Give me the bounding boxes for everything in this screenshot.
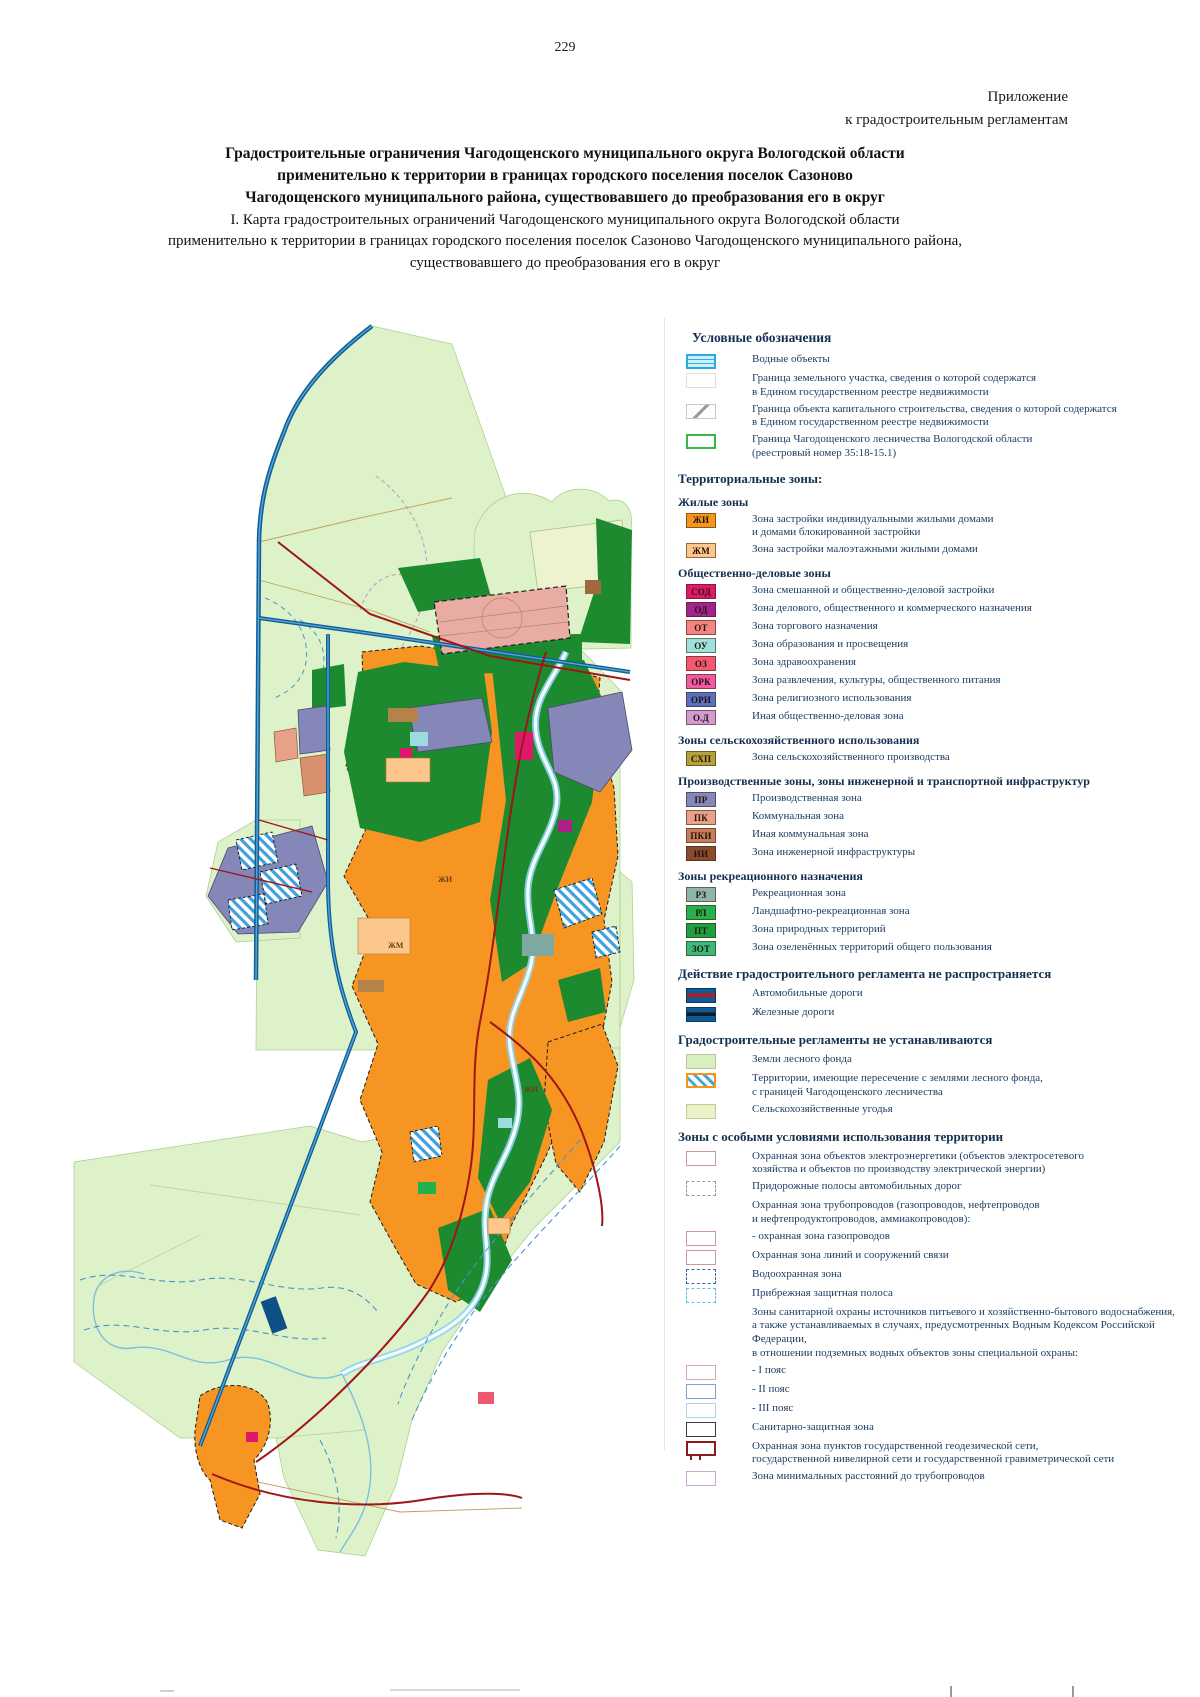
zone-badge: ЗОТ xyxy=(686,941,716,956)
zone-badge: О.Д xyxy=(686,710,716,725)
zone-badge: ОД xyxy=(686,602,716,617)
legend-item-sanitary-sources-title: Зоны санитарной охраны источников питьев… xyxy=(678,1306,1184,1361)
zone-badge: ОРИ xyxy=(686,692,716,707)
legend-item-railroads: Железные дороги xyxy=(678,1006,1184,1022)
legend-item-label: Зона религиозного использования xyxy=(752,692,911,706)
legend-item-label: Водные объекты xyxy=(752,353,830,367)
legend-item-label: Земли лесного фонда xyxy=(752,1053,852,1067)
legend-item-forestry-border: Граница Чагодощенского лесничества Волог… xyxy=(678,433,1184,461)
legend-zone-pk: ПК Коммунальная зона xyxy=(678,810,1184,825)
legend-item-label: Граница земельного участка, сведения о к… xyxy=(752,372,1036,400)
legend-item-belt-3: - III пояс xyxy=(678,1402,1184,1418)
railroad-swatch xyxy=(686,1007,716,1022)
zone-badge: ПКИ xyxy=(686,828,716,843)
section-header-no-regulation: Действие градостроительного регламента н… xyxy=(678,966,1184,982)
legend-item-gas-pipeline-zone: - охранная зона газопроводов xyxy=(678,1230,1184,1246)
legend-item-sanitary-protection: Санитарно-защитная зона xyxy=(678,1421,1184,1437)
zone-badge: ЖИ xyxy=(686,513,716,528)
agri-lands-swatch xyxy=(686,1104,716,1119)
legend-zone-rz: РЗ Рекреационная зона xyxy=(678,887,1184,902)
legend-item-label: - охранная зона газопроводов xyxy=(752,1230,890,1244)
legend-item-label: Автомобильные дороги xyxy=(752,987,863,1001)
zone-badge: ОТ xyxy=(686,620,716,635)
legend-item-forest-lands: Земли лесного фонда xyxy=(678,1053,1184,1069)
legend-zone-pt: ПТ Зона природных территорий xyxy=(678,923,1184,938)
legend-item-label: Коммунальная зона xyxy=(752,810,844,824)
legend-item-label: Зона делового, общественного и коммерчес… xyxy=(752,602,1032,616)
legend-item-label: Охранная зона трубопроводов (газопроводо… xyxy=(752,1199,1040,1227)
zone-badge: РЛ xyxy=(686,905,716,920)
annex-note: Приложение к градостроительным регламент… xyxy=(845,86,1068,133)
legend-item-label: Зона образования и просвещения xyxy=(752,638,908,652)
document-title: Градостроительные ограничения Чагодощенс… xyxy=(40,143,1090,209)
legend-item-label: Зона сельскохозяйственного производства xyxy=(752,751,950,765)
auto-road-swatch xyxy=(686,988,716,1003)
legend-item-label: Иная общественно-деловая зона xyxy=(752,710,904,724)
zoning-map: ЖИ ЖИ ЖМ xyxy=(60,280,635,1560)
page-edge-artifact xyxy=(1072,1686,1074,1697)
legend-item-label: Зона озеленённых территорий общего польз… xyxy=(752,941,992,955)
legend-item-label: Территории, имеющие пересечение с землям… xyxy=(752,1072,1043,1100)
page-edge-artifact xyxy=(160,1690,174,1692)
pipeline-min-distance-swatch xyxy=(686,1471,716,1486)
legend-zone-ii: ИИ Зона инженерной инфраструктуры xyxy=(678,846,1184,861)
zoning-map-svg: ЖИ ЖИ ЖМ xyxy=(60,280,635,1560)
water-protection-swatch xyxy=(686,1269,716,1284)
zone-badge: ОУ xyxy=(686,638,716,653)
legend-item-egrn-parcel: Граница земельного участка, сведения о к… xyxy=(678,372,1184,400)
page-edge-artifact xyxy=(390,1689,520,1691)
legend-item-pipeline-zone-title: Охранная зона трубопроводов (газопроводо… xyxy=(678,1199,1184,1227)
egrn-parcel-swatch xyxy=(686,373,716,388)
group-header-residential: Жилые зоны xyxy=(678,495,1184,510)
roadside-strip-swatch xyxy=(686,1181,716,1196)
legend-item-label: Зона минимальных расстояний до трубопров… xyxy=(752,1470,985,1484)
legend-item-label: - I пояс xyxy=(752,1364,786,1378)
legend-zone-ori: ОРИ Зона религиозного использования xyxy=(678,692,1184,707)
zone-badge: ПК xyxy=(686,810,716,825)
group-header-business: Общественно-деловые зоны xyxy=(678,566,1184,581)
legend-item-label: - II пояс xyxy=(752,1383,790,1397)
legend-item-label: Производственная зона xyxy=(752,792,862,806)
legend-item-label: Санитарно-защитная зона xyxy=(752,1421,874,1435)
legend-item-label: Граница Чагодощенского лесничества Волог… xyxy=(752,433,1032,461)
legend-zone-zhm: ЖМ Зона застройки малоэтажными жилыми до… xyxy=(678,543,1184,558)
legend-item-egrn-capital: Граница объекта капитального строительст… xyxy=(678,403,1184,431)
legend-item-label: Иная коммунальная зона xyxy=(752,828,869,842)
capital-object-swatch xyxy=(686,404,716,419)
comm-lines-swatch xyxy=(686,1250,716,1265)
legend-item-forest-intersection: Территории, имеющие пересечение с землям… xyxy=(678,1072,1184,1100)
legend-item-comm-lines-zone: Охранная зона линий и сооружений связи xyxy=(678,1249,1184,1265)
group-header-agricultural: Зоны сельскохозяйственного использования xyxy=(678,733,1184,748)
legend-item-label: Охранная зона объектов электроэнергетики… xyxy=(752,1150,1084,1178)
gas-pipeline-swatch xyxy=(686,1231,716,1246)
forest-intersection-swatch xyxy=(686,1073,716,1088)
legend-item-label: Охранная зона линий и сооружений связи xyxy=(752,1249,949,1263)
legend-zone-pr: ПР Производственная зона xyxy=(678,792,1184,807)
legend-item-water: Водные объекты xyxy=(678,353,1184,369)
legend-item-label: Придорожные полосы автомобильных дорог xyxy=(752,1180,962,1194)
legend-item-shore-strip: Прибрежная защитная полоса xyxy=(678,1287,1184,1303)
legend-item-label: Сельскохозяйственные угодья xyxy=(752,1103,893,1117)
group-header-recreation: Зоны рекреационного назначения xyxy=(678,869,1184,884)
power-zone-swatch xyxy=(686,1151,716,1166)
legend-zone-ot: ОТ Зона торгового назначения xyxy=(678,620,1184,635)
legend-item-agri-lands: Сельскохозяйственные угодья xyxy=(678,1103,1184,1119)
sanitary-protection-swatch xyxy=(686,1422,716,1437)
legend-item-label: Зона инженерной инфраструктуры xyxy=(752,846,915,860)
legend-item-label: Зоны санитарной охраны источников питьев… xyxy=(752,1306,1184,1361)
page-number: 229 xyxy=(40,40,1090,56)
section-header-not-established: Градостроительные регламенты не устанавл… xyxy=(678,1032,1184,1048)
legend-zone-rl: РЛ Ландшафтно-рекреационная зона xyxy=(678,905,1184,920)
legend-zone-sod: СОД Зона смешанной и общественно-деловой… xyxy=(678,584,1184,599)
zone-badge: ЖМ xyxy=(686,543,716,558)
legend-item-label: Зона смешанной и общественно-деловой зас… xyxy=(752,584,994,598)
zone-badge: ИИ xyxy=(686,846,716,861)
map-legend: Условные обозначения Водные объекты Гран… xyxy=(664,330,1184,1489)
section-header-special-zones: Зоны с особыми условиями использования т… xyxy=(678,1129,1184,1145)
legend-item-belt-2: - II пояс xyxy=(678,1383,1184,1399)
legend-item-auto-roads: Автомобильные дороги xyxy=(678,987,1184,1003)
geodetic-zone-swatch xyxy=(686,1441,716,1456)
map-caption: I. Карта градостроительных ограничений Ч… xyxy=(20,210,1110,274)
legend-zone-zhi: ЖИ Зона застройки индивидуальными жилыми… xyxy=(678,513,1184,541)
legend-item-label: Зона развлечения, культуры, общественног… xyxy=(752,674,1001,688)
legend-item-label: Зона застройки индивидуальными жилыми до… xyxy=(752,513,994,541)
legend-item-label: Прибрежная защитная полоса xyxy=(752,1287,893,1301)
forestry-border-swatch xyxy=(686,434,716,449)
zone-badge: ПР xyxy=(686,792,716,807)
legend-zone-skhp: СХП Зона сельскохозяйственного производс… xyxy=(678,751,1184,766)
legend-item-label: Охранная зона пунктов государственной ге… xyxy=(752,1440,1114,1468)
legend-item-label: Рекреационная зона xyxy=(752,887,846,901)
legend-item-label: Зона здравоохранения xyxy=(752,656,856,670)
belt-3-swatch xyxy=(686,1403,716,1418)
legend-zone-od-other: О.Д Иная общественно-деловая зона xyxy=(678,710,1184,725)
zone-badge: ОРК xyxy=(686,674,716,689)
legend-item-label: Водоохранная зона xyxy=(752,1268,842,1282)
legend-item-label: Зона застройки малоэтажными жилыми домам… xyxy=(752,543,978,557)
belt-2-swatch xyxy=(686,1384,716,1399)
page-edge-artifact xyxy=(950,1686,952,1697)
zone-badge: СХП xyxy=(686,751,716,766)
zone-badge: ОЗ xyxy=(686,656,716,671)
legend-zone-pki: ПКИ Иная коммунальная зона xyxy=(678,828,1184,843)
legend-zone-zot: ЗОТ Зона озеленённых территорий общего п… xyxy=(678,941,1184,956)
document-page: 229 Приложение к градостроительным регла… xyxy=(0,0,1200,1697)
map-label-zhi-2: ЖИ xyxy=(524,1085,539,1094)
legend-item-pipeline-min-distance: Зона минимальных расстояний до трубопров… xyxy=(678,1470,1184,1486)
legend-zone-ork: ОРК Зона развлечения, культуры, обществе… xyxy=(678,674,1184,689)
shore-strip-swatch xyxy=(686,1288,716,1303)
legend-zone-ou: ОУ Зона образования и просвещения xyxy=(678,638,1184,653)
legend-title: Условные обозначения xyxy=(692,330,1184,346)
legend-zone-od: ОД Зона делового, общественного и коммер… xyxy=(678,602,1184,617)
legend-item-roadside-strips: Придорожные полосы автомобильных дорог xyxy=(678,1180,1184,1196)
map-label-zhi-1: ЖИ xyxy=(438,875,453,884)
legend-item-belt-1: - I пояс xyxy=(678,1364,1184,1380)
territorial-zones-header: Территориальные зоны: xyxy=(678,471,1184,487)
legend-item-geodetic-zone: Охранная зона пунктов государственной ге… xyxy=(678,1440,1184,1468)
legend-zone-oz: ОЗ Зона здравоохранения xyxy=(678,656,1184,671)
zone-badge: ПТ xyxy=(686,923,716,938)
belt-1-swatch xyxy=(686,1365,716,1380)
zone-badge: СОД xyxy=(686,584,716,599)
legend-item-water-protection: Водоохранная зона xyxy=(678,1268,1184,1284)
map-label-zhm: ЖМ xyxy=(388,941,404,950)
group-header-industrial: Производственные зоны, зоны инженерной и… xyxy=(678,774,1184,789)
legend-item-label: Ландшафтно-рекреационная зона xyxy=(752,905,910,919)
water-swatch xyxy=(686,354,716,369)
legend-item-label: - III пояс xyxy=(752,1402,793,1416)
legend-item-power-zone: Охранная зона объектов электроэнергетики… xyxy=(678,1150,1184,1178)
forest-lands-swatch xyxy=(686,1054,716,1069)
legend-item-label: Зона природных территорий xyxy=(752,923,886,937)
legend-item-label: Граница объекта капитального строительст… xyxy=(752,403,1117,431)
legend-item-label: Зона торгового назначения xyxy=(752,620,878,634)
legend-item-label: Железные дороги xyxy=(752,1006,834,1020)
zone-badge: РЗ xyxy=(686,887,716,902)
